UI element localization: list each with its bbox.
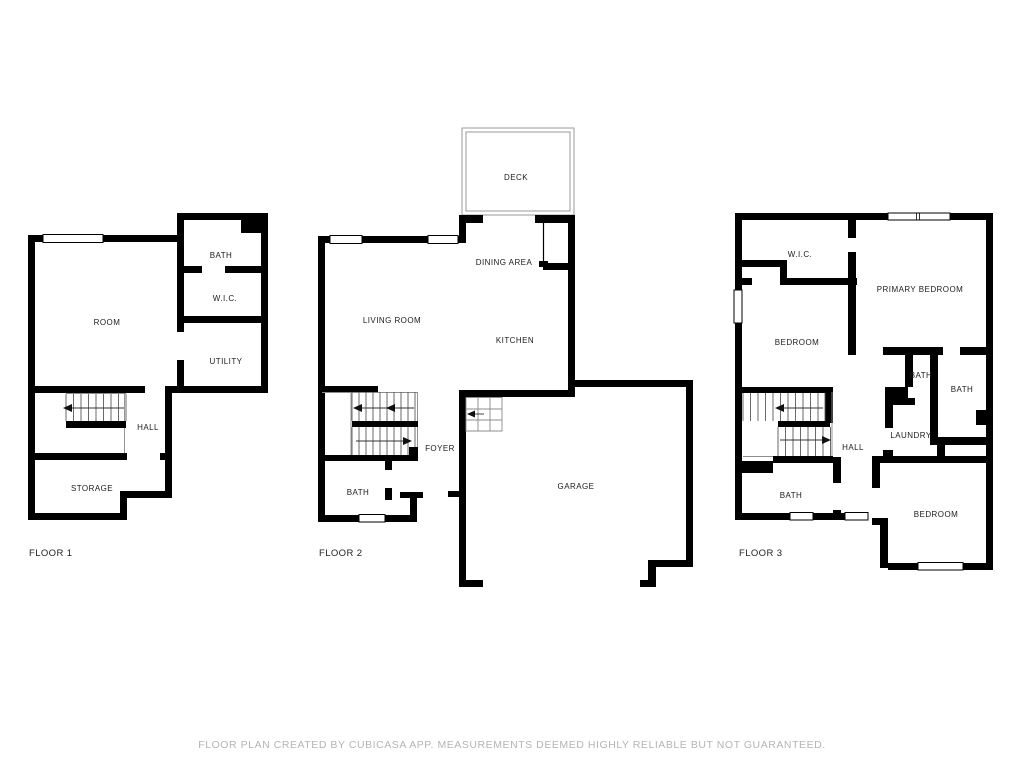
room-label-foyer: FOYER [425,444,455,453]
floor-2-stairs [322,392,418,456]
floor-2-garage-steps [466,398,502,432]
room-label-garage: GARAGE [558,482,595,491]
room-label-laundry: LAUNDRY [890,431,931,440]
window-symbol [734,290,742,323]
floor-1-windows [43,235,103,243]
floor-3-plan: W.I.C. PRIMARY BEDROOM BEDROOM BATH BATH… [734,213,993,570]
room-label-bath-3c: BATH [780,491,803,500]
window-symbol [888,213,950,220]
room-label-utility: UTILITY [210,357,243,366]
stair-direction-arrow [775,404,784,412]
room-label-hall-3: HALL [842,443,864,452]
room-label-bath: BATH [210,251,233,260]
window-symbol [359,515,385,523]
window-symbol [428,236,458,244]
window-symbol [790,513,813,521]
floor-1-stairs [63,394,126,454]
floor-3-label: FLOOR 3 [739,548,782,559]
room-label-room: ROOM [94,318,121,327]
room-label-wic-3: W.I.C. [788,250,812,259]
room-label-kitchen: KITCHEN [496,336,534,345]
room-label-bedroom-3b: BEDROOM [914,510,959,519]
window-symbol [845,513,868,521]
floor-2-plan: DECK DINING AREA LIVING ROOM KITCHEN FOY… [318,128,693,587]
room-label-dining-area: DINING AREA [476,258,533,267]
floor-2-deck-outline [462,128,574,215]
room-label-wic: W.I.C. [213,294,237,303]
room-label-storage: STORAGE [71,484,113,493]
room-label-bath-3b: BATH [951,385,974,394]
room-label-living-room: LIVING ROOM [363,316,421,325]
room-label-bath-2: BATH [347,488,370,497]
room-label-bedroom-3a: BEDROOM [775,338,820,347]
floor-3-stairs [743,392,832,457]
stair-direction-arrow [403,437,412,445]
floor-2-label: FLOOR 2 [319,548,362,559]
room-label-hall: HALL [137,423,159,432]
stair-direction-arrow [822,436,831,444]
floor-plan-canvas: BATH W.I.C. ROOM UTILITY HALL STORAGE FL… [0,0,1024,768]
floor-2-windows [330,236,458,523]
room-label-primary-bedroom: PRIMARY BEDROOM [877,285,963,294]
window-symbol [330,236,362,244]
room-label-bath-3a: BATH [910,371,933,380]
floor-1-plan: BATH W.I.C. ROOM UTILITY HALL STORAGE FL… [28,213,268,559]
floor-plan-image: BATH W.I.C. ROOM UTILITY HALL STORAGE FL… [0,0,1024,768]
stair-direction-arrow [63,404,72,412]
floor-1-label: FLOOR 1 [29,548,72,559]
room-label-deck: DECK [504,173,528,182]
stair-direction-arrow [353,404,362,412]
window-symbol [43,235,103,243]
stair-direction-arrow [467,411,475,418]
disclaimer-text: FLOOR PLAN CREATED BY CUBICASA APP. MEAS… [198,739,826,751]
window-symbol [918,563,963,571]
floor-2-walls [318,215,693,587]
